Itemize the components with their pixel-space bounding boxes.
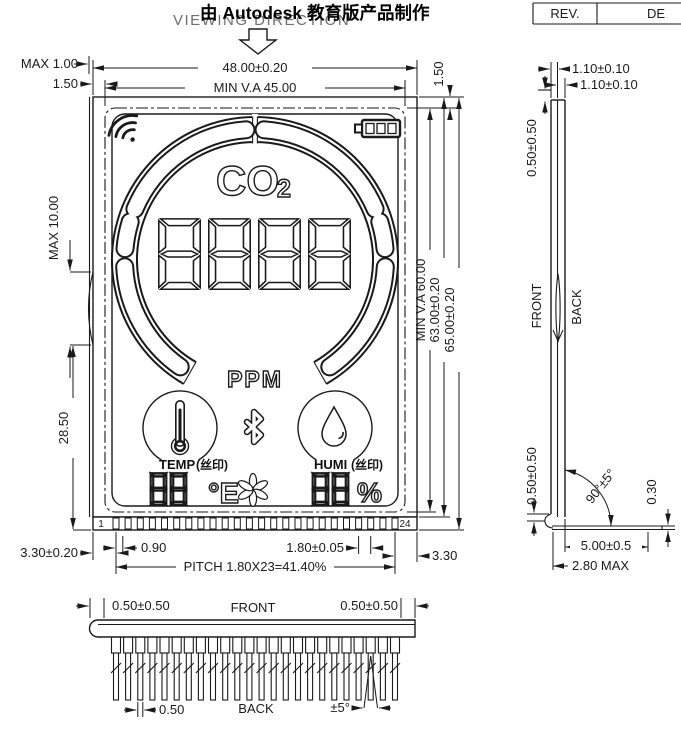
gas-subscript: 2 [277,175,291,203]
pin [281,636,290,653]
dim-pin-thickness: 0.30 [644,479,659,504]
dim-back-glass: 1.10±0.10 [580,77,638,92]
bottom-front-label: FRONT [231,600,276,615]
pin [162,653,167,700]
humi-label: HUMI [314,457,347,472]
pin [124,636,133,653]
pin [354,636,363,653]
dim-splay: ±5° [330,700,350,715]
pin [211,653,216,700]
dim-bottom-edge-offset: 0.50±0.50 [524,447,539,505]
pin [356,653,361,700]
pin [259,518,265,529]
pin [234,518,240,529]
down-arrow-icon [240,29,276,54]
pin [186,653,191,700]
dim-pin-margin-left: 3.30±0.20 [20,545,78,560]
pin [391,636,400,653]
pin [114,653,119,700]
pin [393,653,398,700]
pin [198,653,203,700]
pin [186,518,192,529]
pin [295,518,301,529]
battery-icon [355,120,400,137]
side-front-label: FRONT [529,284,544,329]
dim-edge-left: 0.50±0.50 [112,598,170,613]
pin [380,518,386,529]
fill-port-profile [556,274,560,342]
pin [210,518,216,529]
bottom-pin-row [111,636,400,700]
dim-bend-max: 2.80 MAX [572,558,629,573]
pin [318,636,327,653]
side-back-label: BACK [569,289,584,325]
dim-bump-height: MAX 10.00 [46,196,61,260]
pin [245,636,254,653]
side-view: FRONT BACK 1.10±0.10 1.10±0.10 0.50±0.50… [524,61,675,573]
pin [344,653,349,700]
dim-pitch-total: PITCH 1.80X23=41.40% [184,559,327,574]
pin [283,653,288,700]
description-header-cell: DE [647,6,665,21]
pin [332,653,337,700]
pin [233,636,242,653]
pin [308,653,313,700]
pin [294,636,303,653]
humi-unit: % [357,477,382,508]
pin [368,653,373,700]
pin [247,653,252,700]
unit-label: PPM [227,366,283,392]
pin [162,518,168,529]
pin [296,653,301,700]
pin [148,636,157,653]
pin [331,518,337,529]
rev-header-cell: REV. [550,6,579,21]
pin [113,518,119,529]
dim-top-edge-offset: 0.50±0.50 [524,119,539,177]
dim-top-offset-left: 1.50 [53,76,78,91]
pin [344,518,350,529]
humi-note: (丝印) [351,457,383,472]
dim-bend-angle: 90°±5° [582,466,618,506]
pin [137,518,143,529]
dim-pin-length: 5.00±0.5 [581,538,632,553]
pin [378,636,387,653]
front-view: CO 2 PPM [20,56,464,574]
dim-va-width: MIN V.A 45.00 [214,80,297,95]
pin [366,636,375,653]
pin [196,636,205,653]
glass-edge-bar [90,620,416,637]
pin [392,518,398,529]
gas-label: CO [216,157,279,204]
pin [160,636,169,653]
dim-max-top-offset: MAX 1.00 [21,56,78,71]
cad-drawing: VIEWING DIRECTION 由 Autodesk 教育版产品制作 REV… [0,0,681,744]
pin-bend [545,514,553,528]
dim-va-height: MIN V.A 60.00 [413,259,428,342]
autodesk-watermark: 由 Autodesk 教育版产品制作 [200,3,430,23]
pin [271,518,277,529]
dim-top-offset-right: 1.50 [431,61,446,86]
pin [283,518,289,529]
bottom-view: FRONT BACK 0.50±0.50 0.50±0.50 0.50 ±5° [76,598,429,717]
pin-number-last: 24 [399,519,411,530]
pin [126,653,131,700]
pin [174,518,180,529]
pin [307,518,313,529]
pin [342,636,351,653]
drawing-sheet: VIEWING DIRECTION 由 Autodesk 教育版产品制作 REV… [0,0,681,744]
pin-strip: 1 24 [93,517,417,530]
dim-front-glass: 1.10±0.10 [572,61,630,76]
temp-label: TEMP [159,457,195,472]
title-block: REV. DE [533,3,681,24]
pin [125,518,131,529]
dim-edge-right: 0.50±0.50 [340,598,398,613]
pin [319,518,325,529]
pin [368,518,374,529]
pin-number-first: 1 [98,519,104,530]
pin [138,653,143,700]
pin [235,653,240,700]
pin [221,636,230,653]
pin [149,518,155,529]
side-dimensions: 1.10±0.10 1.10±0.10 0.50±0.50 0.50±0.50 … [524,61,668,573]
pin [136,636,145,653]
pin [380,653,385,700]
temp-unit: °E [208,478,239,510]
pin [320,653,325,700]
pin [330,636,339,653]
dim-bump-to-bottom: 28.50 [56,412,71,445]
pin [271,653,276,700]
temp-note: (丝印) [196,457,228,472]
pin [172,636,181,653]
pin [257,636,266,653]
dim-glass-height: 63.00±0.20 [427,278,442,343]
pin [356,518,362,529]
dim-pin-width: 0.50 [159,702,184,717]
pin [184,636,193,653]
pin [209,636,218,653]
pin [306,636,315,653]
dim-pin-margin-right: 3.30 [432,548,457,563]
pin [223,653,228,700]
dim-overall-height: 65.00±0.20 [442,288,457,353]
dim-pin-pitch: 1.80±0.05 [286,540,344,555]
dim-overall-width: 48.00±0.20 [223,60,288,75]
header: VIEWING DIRECTION 由 Autodesk 教育版产品制作 REV… [173,3,681,54]
pin [269,636,278,653]
pin [150,653,155,700]
pin [198,518,204,529]
pin [259,653,264,700]
pin [246,518,252,529]
pin [222,518,228,529]
dim-pin-end-offset: 0.90 [141,540,166,555]
pin [112,636,121,653]
pin [174,653,179,700]
bottom-back-label: BACK [238,701,274,716]
